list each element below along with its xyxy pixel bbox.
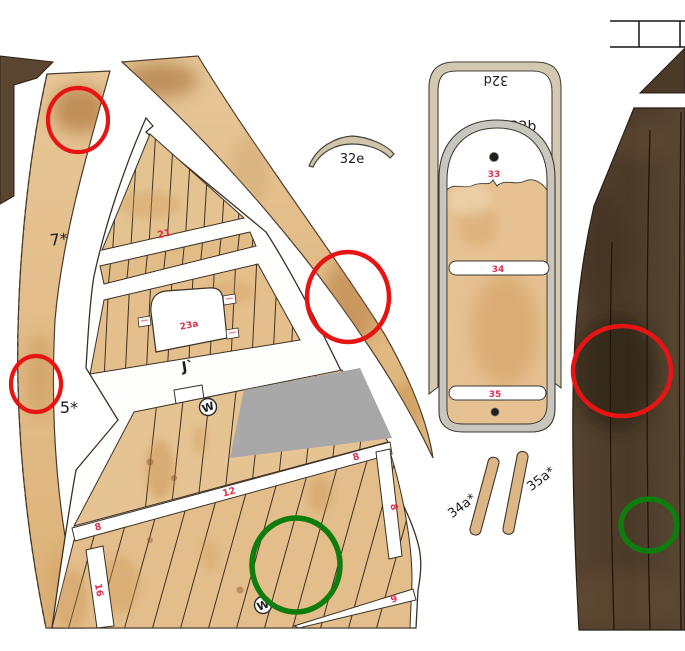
- hole-33-label: 33: [488, 170, 501, 180]
- frame-32d-label: 32d: [484, 72, 509, 87]
- hole-top: [490, 153, 499, 162]
- hull-top-wedge: [640, 48, 685, 93]
- strip-35a-label: 35a*: [524, 464, 558, 495]
- strip-16-label: 16: [92, 583, 105, 598]
- parts-sheet-scan: 21 23a J`: [0, 0, 685, 651]
- brace-35-label: 35: [489, 390, 502, 400]
- strip-34a-part: 34a*: [445, 456, 500, 536]
- wood-grain-mark-upper: W: [200, 399, 217, 416]
- floor-part-32b: 33 34 35: [439, 120, 555, 432]
- strip-35a-part: 35a*: [502, 451, 558, 536]
- deck-piece: 21 23a J`: [40, 118, 426, 630]
- calibration-grid: [610, 21, 685, 47]
- parts-sheet-svg: 21 23a J`: [0, 0, 685, 651]
- part-5-label: 5*: [60, 398, 78, 417]
- brace-34-label: 34: [492, 265, 505, 275]
- arc-part-32e: 32e: [309, 136, 394, 167]
- part-7-label: 7*: [49, 229, 69, 250]
- hole-bottom: [491, 408, 499, 416]
- deck-j-label: J`: [180, 358, 196, 376]
- arc-32e-label: 32e: [340, 152, 365, 167]
